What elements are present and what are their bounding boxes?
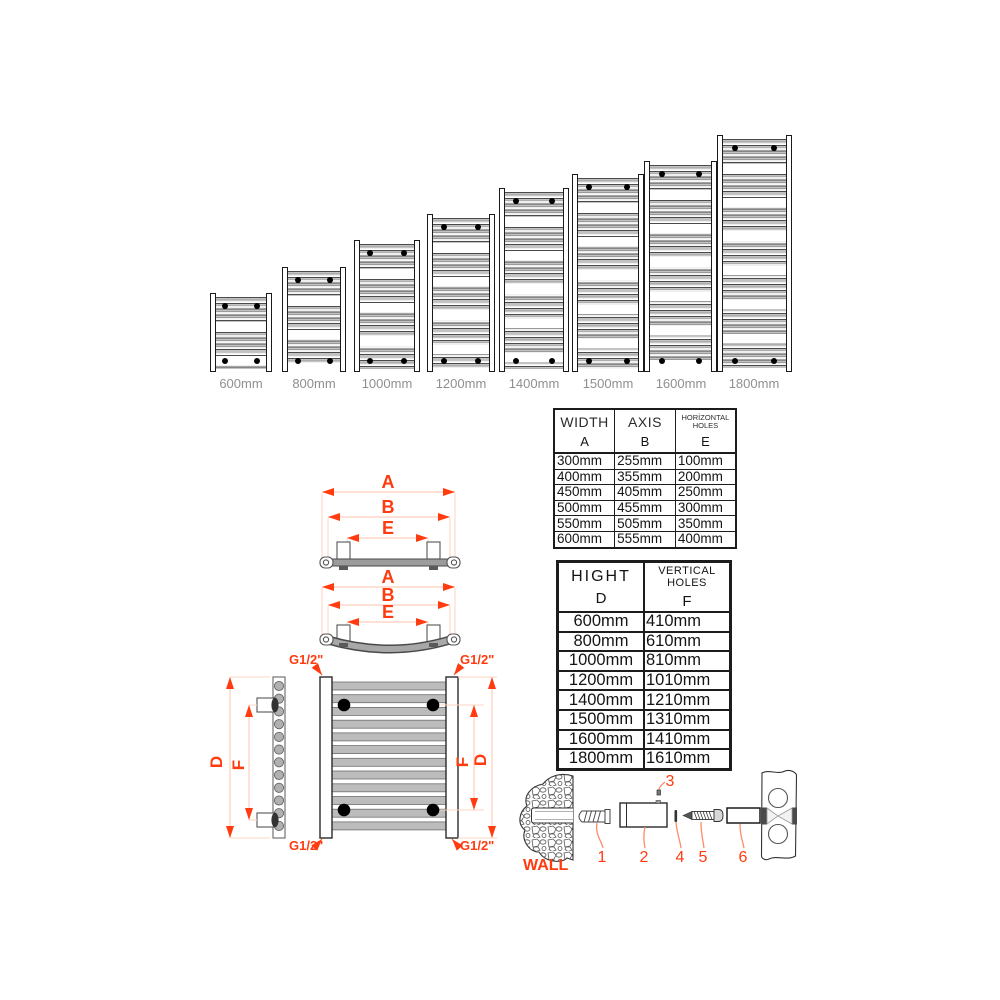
table-cell: 550mm [554, 516, 615, 532]
column-header: VERTICAL HOLESF [644, 562, 731, 613]
part-number-1: 1 [598, 849, 607, 866]
table-cell: 1200mm [558, 671, 645, 691]
dim-E-label: E [382, 518, 394, 538]
header-row: HIGHTDVERTICAL HOLESF [558, 562, 731, 613]
mount-point [401, 358, 407, 364]
left-rail [320, 677, 332, 838]
table-cell: 400mm [554, 469, 615, 485]
table-cell: 250mm [675, 485, 736, 501]
radiator-bar [332, 797, 446, 805]
part-number-6: 6 [739, 849, 748, 866]
wall-plug [579, 810, 610, 824]
table-row: 1200mm1010mm [558, 671, 731, 691]
g-connection-top-right: G1/2" [460, 652, 494, 667]
radiator-bar [332, 771, 446, 779]
table-row: 600mm410mm [558, 612, 731, 632]
bracket-barrel [620, 801, 667, 828]
mount-point [295, 277, 301, 283]
radiator-illustration [572, 174, 644, 372]
right-rail [414, 240, 420, 372]
dim-A-label: A [382, 567, 395, 587]
mount-point [549, 198, 555, 204]
radiator-height-label: 1400mm [499, 376, 569, 391]
tube-end [274, 758, 283, 767]
mount-point [222, 303, 228, 309]
mount-point [367, 250, 373, 256]
part-number-5: 5 [699, 849, 708, 866]
right-rail [786, 135, 792, 372]
radiator-bars [433, 218, 489, 369]
wall-section: WALL [520, 774, 573, 874]
mount-point [427, 699, 440, 712]
mount-point [771, 358, 777, 364]
mount-point [513, 358, 519, 364]
tube-end [274, 745, 283, 754]
radiator-bar [332, 822, 446, 830]
wall-fixing-diagram: WALL 1 2 3 4 [515, 760, 805, 880]
mount-point [732, 145, 738, 151]
table-cell: 400mm [675, 531, 736, 547]
radiator-bar [332, 758, 446, 766]
screw [683, 810, 723, 822]
table-cell: 800mm [558, 632, 645, 652]
grub-screw [657, 790, 661, 795]
table-cell: 1000mm [558, 651, 645, 671]
table-row: 800mm610mm [558, 632, 731, 652]
table-row: 550mm505mm350mm [554, 516, 736, 532]
mount-point [624, 184, 630, 190]
table-cell: 600mm [558, 612, 645, 632]
radiator-height-label: 1500mm [573, 376, 643, 391]
fixing-pin [675, 810, 678, 822]
column-header: HORİZONTAL HOLESE [675, 409, 736, 453]
table-row: 600mm555mm400mm [554, 531, 736, 547]
mount-point [427, 804, 440, 817]
table-cell: 555mm [615, 531, 676, 547]
mount-point [338, 804, 351, 817]
column-header: AXISB [615, 409, 676, 453]
dim-D-label: D [471, 754, 490, 766]
table-cell: 405mm [615, 485, 676, 501]
radiator-bar [332, 733, 446, 741]
table-cell: 610mm [644, 632, 731, 652]
mount-point [624, 358, 630, 364]
mount-point [367, 358, 373, 364]
table-row: 1600mm1410mm [558, 730, 731, 750]
table-cell: 1010mm [644, 671, 731, 691]
tube-end [274, 732, 283, 741]
table-row: 300mm255mm100mm [554, 453, 736, 469]
height-table: HIGHTDVERTICAL HOLESF600mm410mm800mm610m… [556, 560, 732, 771]
radiator-height-label: 1600mm [646, 376, 716, 391]
left-rail [210, 293, 216, 372]
column-header: WIDTHA [554, 409, 615, 453]
mount-point [696, 358, 702, 364]
table-row: 1400mm1210mm [558, 690, 731, 710]
mount-point [659, 358, 665, 364]
wall-bracket [337, 542, 350, 559]
mount-point [441, 224, 447, 230]
tube-end [274, 796, 283, 805]
table-cell: 1500mm [558, 710, 645, 730]
table-cell: 300mm [675, 500, 736, 516]
table-cell: 200mm [675, 469, 736, 485]
table-row: 1000mm810mm [558, 651, 731, 671]
mount-point [513, 198, 519, 204]
table-cell: 500mm [554, 500, 615, 516]
radiator-illustration [717, 135, 792, 372]
radiator-bars [578, 178, 638, 369]
mount-point [771, 145, 777, 151]
rail-bar [328, 559, 450, 566]
mount-point [295, 358, 301, 364]
left-rail [282, 267, 288, 372]
mount-point [659, 171, 665, 177]
table-cell: 350mm [675, 516, 736, 532]
radiator-height-label: 800mm [279, 376, 349, 391]
mount-point [732, 358, 738, 364]
table-cell: 1600mm [558, 730, 645, 750]
radiator-bar [332, 784, 446, 792]
left-rail [427, 214, 433, 372]
radiator-bars [360, 244, 414, 369]
radiator-bar [332, 682, 446, 690]
radiator-bar [332, 746, 446, 754]
radiator-height-label: 1200mm [426, 376, 496, 391]
table-cell: 1310mm [644, 710, 731, 730]
g-connection-bottom-right: G1/2" [460, 838, 494, 853]
wall-label: WALL [523, 857, 569, 874]
dim-F-label: F [229, 760, 248, 770]
right-rail [563, 188, 569, 372]
radiator-illustration [354, 240, 420, 372]
mount-point [586, 184, 592, 190]
header-row: WIDTHAAXISBHORİZONTAL HOLESE [554, 409, 736, 453]
mount-point [222, 358, 228, 364]
table-cell: 600mm [554, 531, 615, 547]
right-rail [340, 267, 346, 372]
tube-end [274, 720, 283, 729]
mount-point [338, 699, 351, 712]
table-cell: 1410mm [644, 730, 731, 750]
radiator-front-view [320, 677, 458, 838]
mount-point [475, 224, 481, 230]
tube-end [274, 783, 283, 792]
radiator-bars [650, 165, 711, 369]
wall-bracket [427, 542, 440, 559]
towel-radiator-spec-sheet: 600mm 800mm 1000mm 1200mm 1400mm [0, 0, 1000, 1000]
dimension-drawings: A B E A B E [200, 460, 500, 880]
wall-drill-hole [532, 808, 574, 823]
table-cell: 450mm [554, 485, 615, 501]
mount-point [327, 277, 333, 283]
table-cell: 1400mm [558, 690, 645, 710]
radiator-illustration [427, 214, 495, 372]
table-cell: 505mm [615, 516, 676, 532]
dim-B-label: B [382, 497, 395, 517]
radiator-bars [723, 139, 786, 369]
mount-point [549, 358, 555, 364]
table-cell: 355mm [615, 469, 676, 485]
radiator-bars [505, 192, 563, 369]
dim-E-label: E [382, 602, 394, 622]
table-row: 400mm355mm200mm [554, 469, 736, 485]
straight-rail-top-view: A B E [320, 472, 460, 570]
table-cell: 255mm [615, 453, 676, 469]
curved-rail-top-view: A B E [320, 567, 460, 649]
width-table: WIDTHAAXISBHORİZONTAL HOLESE300mm255mm10… [553, 408, 737, 549]
g-connection-top-left: G1/2" [289, 652, 323, 667]
left-rail [499, 188, 505, 372]
left-rail [644, 161, 650, 372]
radiator-illustration [499, 188, 569, 372]
part-number-4: 4 [676, 849, 685, 866]
table-cell: 810mm [644, 651, 731, 671]
mount-point [254, 303, 260, 309]
right-rail [266, 293, 272, 372]
mount-point [254, 358, 260, 364]
radiator-height-label: 1000mm [352, 376, 422, 391]
left-rail [354, 240, 360, 372]
mount-point [696, 171, 702, 177]
tube-end [274, 681, 283, 690]
table-cell: 100mm [675, 453, 736, 469]
dim-A-label: A [382, 472, 395, 492]
radiator-height-label: 600mm [206, 376, 276, 391]
radiator-bar [332, 720, 446, 728]
mount-point [475, 358, 481, 364]
bracket-holder [727, 808, 760, 823]
table-cell: 455mm [615, 500, 676, 516]
dim-D-label: D [207, 756, 226, 768]
mount-point [441, 358, 447, 364]
radiator-bars [288, 271, 340, 369]
right-rail [489, 214, 495, 372]
radiator-illustration [282, 267, 346, 372]
rail-segment [761, 770, 797, 859]
left-rail [717, 135, 723, 372]
radiator-side-view: D F [207, 677, 285, 838]
table-row: 1500mm1310mm [558, 710, 731, 730]
mount-point [586, 358, 592, 364]
table-cell: 300mm [554, 453, 615, 469]
mount-point [327, 358, 333, 364]
mount-point [401, 250, 407, 256]
part-number-3: 3 [666, 773, 675, 790]
table-row: 500mm455mm300mm [554, 500, 736, 516]
table-row: 450mm405mm250mm [554, 485, 736, 501]
table-cell: 1210mm [644, 690, 731, 710]
part-number-2: 2 [640, 849, 649, 866]
table-cell: 410mm [644, 612, 731, 632]
left-rail [572, 174, 578, 372]
g-connection-bottom-left: G1/2" [289, 838, 323, 853]
column-header: HIGHTD [558, 562, 645, 613]
tube-end [274, 770, 283, 779]
radiator-illustration [644, 161, 717, 372]
radiator-height-label: 1800mm [719, 376, 789, 391]
radiator-illustration [210, 293, 272, 372]
dim-F-label: F [453, 757, 472, 767]
